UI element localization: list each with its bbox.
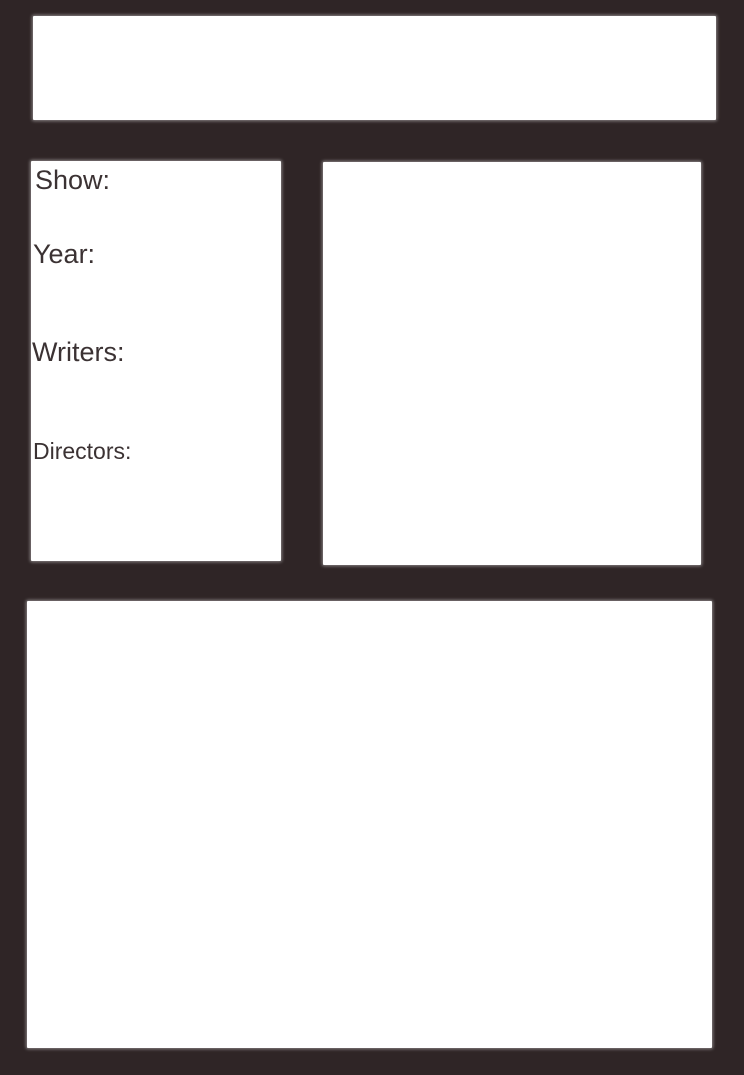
show-label: Show: <box>35 166 110 194</box>
year-label: Year: <box>33 240 95 268</box>
directors-label: Directors: <box>33 439 131 463</box>
show-info-panel: Show: Year: Writers: Directors: <box>31 161 281 561</box>
writers-label: Writers: <box>32 338 125 366</box>
wireframe-page: Show: Year: Writers: Directors: <box>0 0 744 1075</box>
image-placeholder-box <box>323 162 701 565</box>
content-placeholder-box <box>27 601 712 1048</box>
header-placeholder-box <box>33 16 716 120</box>
